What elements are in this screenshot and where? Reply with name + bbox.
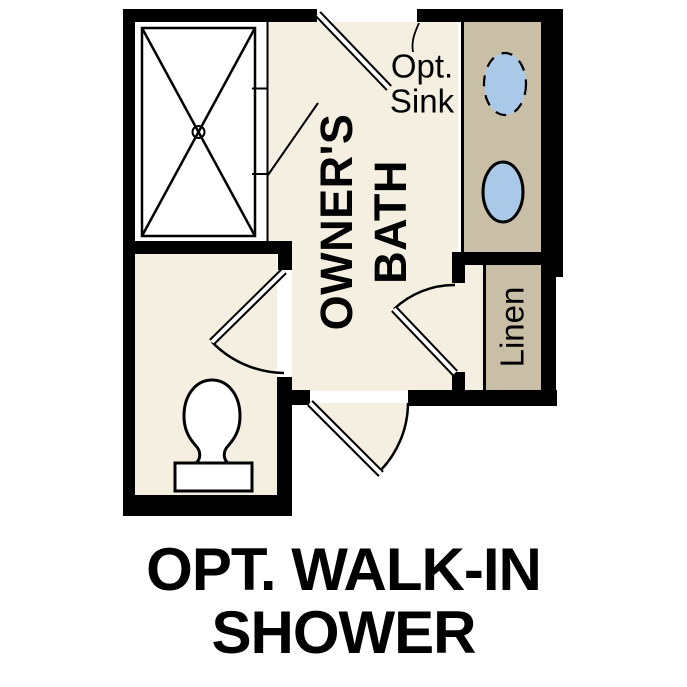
plan-caption-line1: OPT. WALK-IN <box>0 538 687 601</box>
opt-sink-label: Opt. Sink <box>390 49 454 118</box>
room-label-line1: OWNER'S <box>310 114 364 331</box>
toilet-tank <box>175 463 252 491</box>
optional-sink <box>484 53 526 115</box>
opt-sink-label-line1: Opt. <box>390 49 454 84</box>
room-label-line2: BATH <box>364 114 418 331</box>
room-label-owners-bath: OWNER'S BATH <box>310 114 418 331</box>
plan-caption: OPT. WALK-IN SHOWER <box>0 538 687 664</box>
floor-plan: Opt. Sink OWNER'S BATH Linen OPT. WALK-I… <box>0 0 687 687</box>
plan-caption-line2: SHOWER <box>0 601 687 664</box>
sink <box>483 162 523 222</box>
linen-label: Linen <box>494 287 529 368</box>
